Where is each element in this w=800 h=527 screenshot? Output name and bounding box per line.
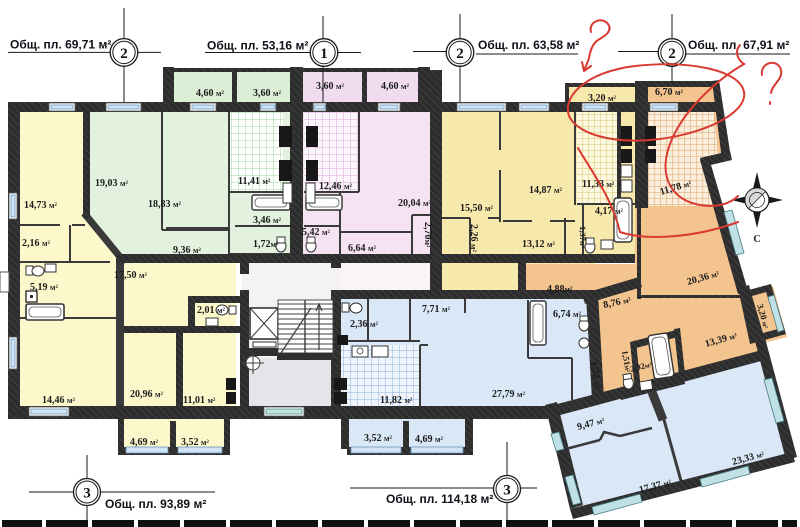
svg-text:1,37м²: 1,37м² [578, 226, 588, 248]
svg-text:20,04 м²: 20,04 м² [398, 198, 431, 209]
svg-text:3,52 м²: 3,52 м² [364, 433, 392, 444]
svg-text:15,50 м²: 15,50 м² [460, 203, 493, 214]
svg-text:4,69 м²: 4,69 м² [415, 434, 443, 445]
svg-text:2: 2 [120, 46, 128, 62]
svg-text:4,60 м²: 4,60 м² [381, 81, 409, 92]
svg-text:2,16 м²: 2,16 м² [22, 238, 50, 249]
svg-text:3,52 м²: 3,52 м² [181, 437, 209, 448]
svg-text:6,64 м²: 6,64 м² [348, 243, 376, 254]
svg-text:12,46 м²: 12,46 м² [319, 181, 352, 192]
svg-text:14,46 м²: 14,46 м² [42, 395, 75, 406]
svg-text:Общ. пл. 69,71 м²: Общ. пл. 69,71 м² [10, 38, 111, 52]
svg-text:Общ. пл. 67,91 м²: Общ. пл. 67,91 м² [688, 38, 789, 52]
svg-text:11,41 м²: 11,41 м² [238, 176, 271, 187]
svg-text:14,73 м²: 14,73 м² [24, 200, 57, 211]
svg-text:9,36 м²: 9,36 м² [173, 245, 201, 256]
svg-text:14,87 м²: 14,87 м² [529, 185, 562, 196]
svg-text:1,72м²: 1,72м² [253, 239, 279, 250]
svg-text:4,88м²: 4,88м² [547, 284, 573, 295]
svg-text:4,60 м²: 4,60 м² [196, 88, 224, 99]
svg-text:5,42 м²: 5,42 м² [302, 227, 330, 238]
svg-text:2: 2 [456, 46, 464, 62]
svg-text:11,82 м²: 11,82 м² [380, 395, 413, 406]
svg-text:С: С [753, 234, 760, 245]
svg-text:27,79 м²: 27,79 м² [492, 389, 525, 400]
svg-text:2,26 м²: 2,26 м² [468, 224, 479, 252]
svg-text:2,70м²: 2,70м² [422, 222, 433, 248]
svg-text:2: 2 [668, 46, 676, 62]
svg-text:3: 3 [83, 486, 91, 502]
svg-text:5,19 м²: 5,19 м² [30, 282, 58, 293]
svg-text:2,36 м²: 2,36 м² [350, 319, 378, 330]
svg-text:Общ. пл. 63,58 м²: Общ. пл. 63,58 м² [478, 38, 579, 52]
svg-text:3,60 м²: 3,60 м² [316, 81, 344, 92]
svg-text:4,17 м²: 4,17 м² [595, 206, 623, 217]
svg-text:18,83 м²: 18,83 м² [148, 199, 181, 210]
svg-text:1: 1 [320, 46, 328, 62]
svg-text:4,69 м²: 4,69 м² [130, 437, 158, 448]
svg-text:11,01 м²: 11,01 м² [183, 395, 216, 406]
svg-text:19,03 м²: 19,03 м² [95, 178, 128, 189]
svg-text:3,60 м²: 3,60 м² [253, 88, 281, 99]
svg-text:Общ. пл. 114,18 м²: Общ. пл. 114,18 м² [386, 492, 493, 506]
svg-text:3,46 м²: 3,46 м² [253, 215, 281, 226]
svg-text:3,20 м²: 3,20 м² [588, 93, 616, 104]
svg-text:6,70 м²: 6,70 м² [655, 87, 683, 98]
svg-text:3: 3 [503, 483, 511, 499]
svg-text:Общ. пл. 53,16 м²: Общ. пл. 53,16 м² [207, 39, 308, 53]
svg-text:17,50 м²: 17,50 м² [114, 270, 147, 281]
svg-text:13,12 м²: 13,12 м² [522, 239, 555, 250]
svg-text:7,71 м²: 7,71 м² [422, 304, 450, 315]
svg-text:Общ. пл. 93,89 м²: Общ. пл. 93,89 м² [105, 497, 206, 511]
svg-text:6,74 м²: 6,74 м² [553, 309, 581, 320]
svg-text:20,96 м²: 20,96 м² [130, 389, 163, 400]
svg-text:2,01 м²: 2,01 м² [197, 305, 225, 316]
